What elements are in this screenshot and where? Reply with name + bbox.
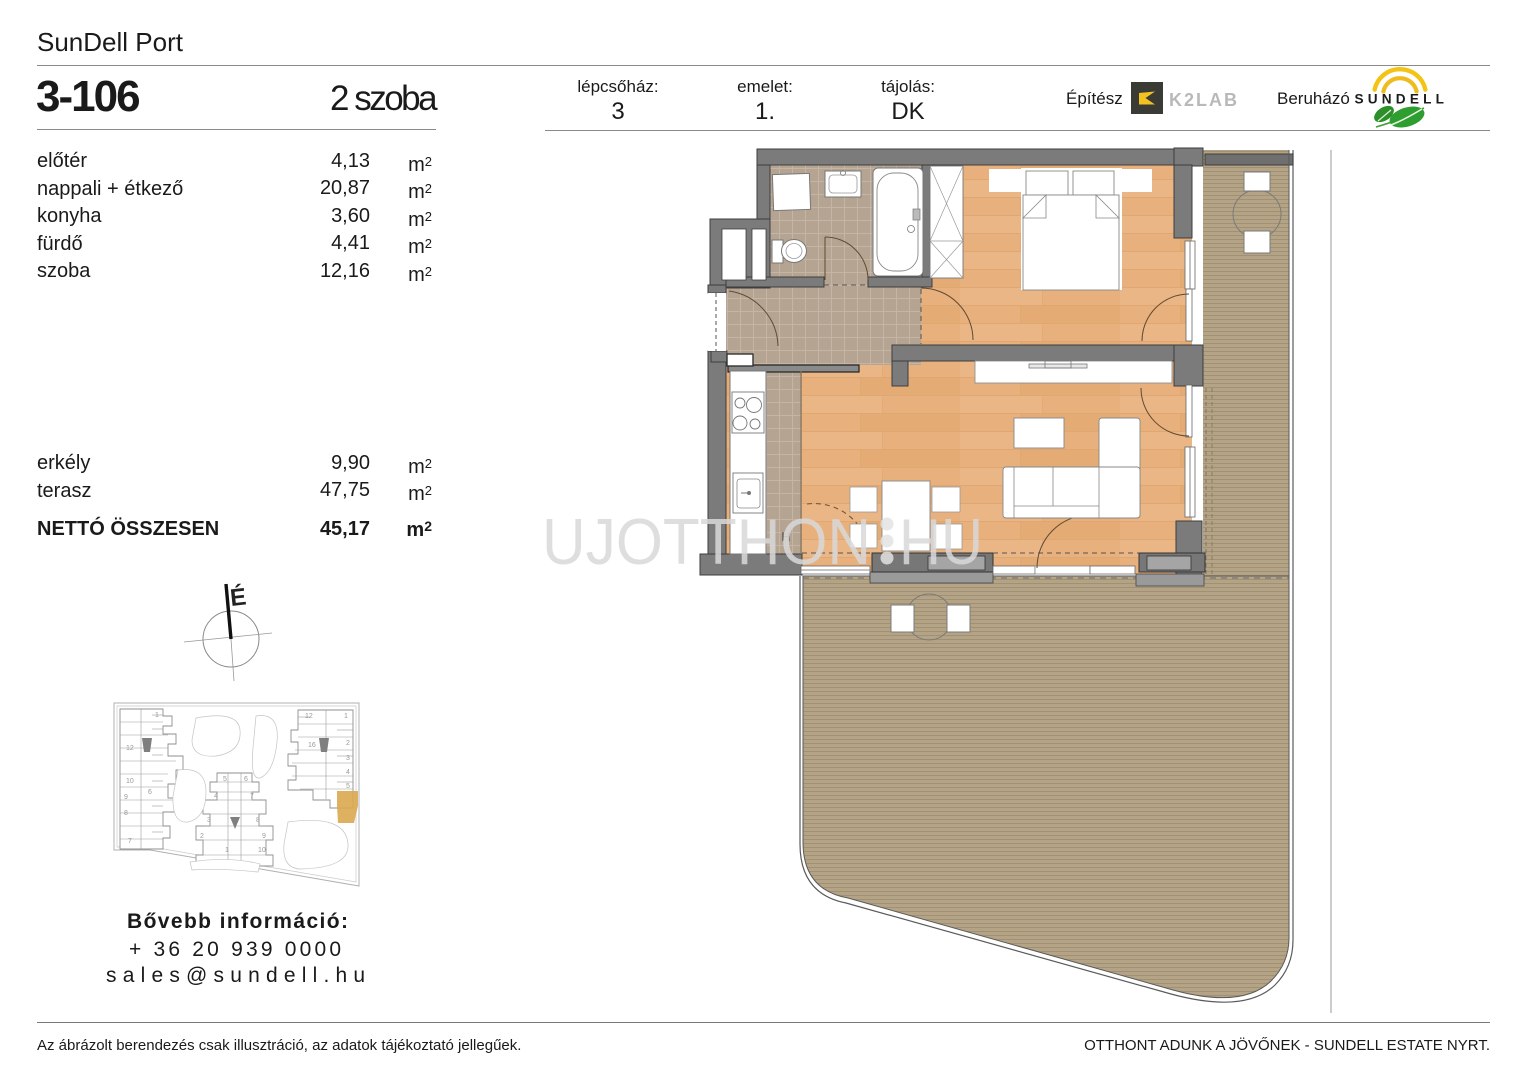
svg-text:12: 12 [305, 713, 313, 720]
svg-text:3: 3 [207, 817, 211, 824]
svg-text:4: 4 [346, 769, 350, 776]
svg-text:6: 6 [244, 776, 248, 783]
svg-text:2: 2 [346, 740, 350, 747]
svg-text:1: 1 [225, 847, 229, 854]
svg-text:7: 7 [128, 838, 132, 845]
svg-text:10: 10 [126, 778, 134, 785]
svg-text:UJOTTHON: UJOTTHON [542, 505, 871, 578]
svg-text:2: 2 [200, 833, 204, 840]
svg-text:É: É [229, 582, 248, 612]
svg-text:7: 7 [250, 793, 254, 800]
svg-text:HU: HU [899, 505, 983, 578]
svg-text:10: 10 [258, 847, 266, 854]
svg-text:1: 1 [344, 713, 348, 720]
svg-text:9: 9 [124, 794, 128, 801]
svg-text:6: 6 [148, 789, 152, 796]
svg-text:8: 8 [256, 817, 260, 824]
svg-text:9: 9 [262, 833, 266, 840]
svg-text:12: 12 [126, 745, 134, 752]
svg-text:4: 4 [214, 793, 218, 800]
svg-text:3: 3 [346, 755, 350, 762]
svg-text:5: 5 [223, 776, 227, 783]
svg-text:8: 8 [124, 810, 128, 817]
svg-text:5: 5 [346, 783, 350, 790]
svg-text:16: 16 [308, 742, 316, 749]
svg-text:1: 1 [155, 712, 159, 719]
